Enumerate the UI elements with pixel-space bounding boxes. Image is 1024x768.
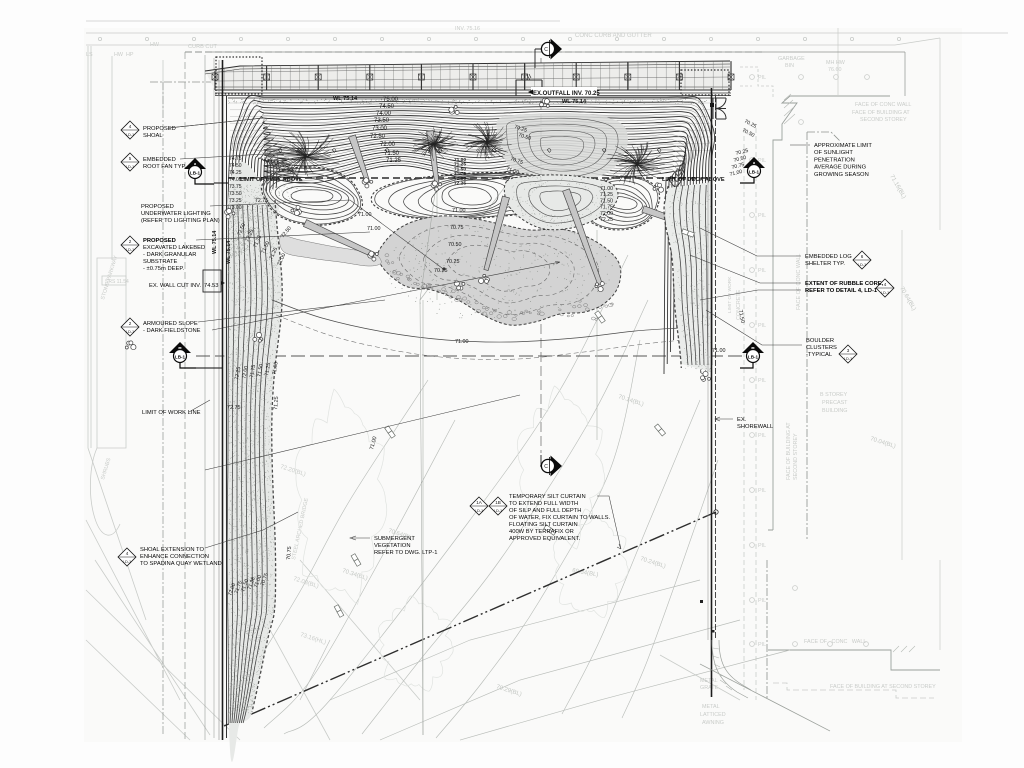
svg-text:LD-1: LD-1 xyxy=(126,164,134,169)
svg-text:SECOND STOREY: SECOND STOREY xyxy=(860,117,907,123)
svg-text:FACE OF CONC WALL: FACE OF CONC WALL xyxy=(796,254,802,310)
svg-text:73.50: 73.50 xyxy=(374,118,390,124)
svg-text:EX.OUTFALL INV. 70.25: EX.OUTFALL INV. 70.25 xyxy=(533,91,600,97)
svg-text:72.25: 72.25 xyxy=(600,217,613,223)
svg-text:71.50: 71.50 xyxy=(600,198,613,204)
svg-text:PRECAST: PRECAST xyxy=(822,400,848,406)
svg-text:3: 3 xyxy=(847,348,850,353)
svg-text:FACE OF CONC WALL: FACE OF CONC WALL xyxy=(804,639,866,645)
svg-text:74.00: 74.00 xyxy=(376,111,392,117)
svg-text:PIL: PIL xyxy=(758,642,766,648)
svg-text:ARMOURED SLOPE- DARK FIELDSTON: ARMOURED SLOPE- DARK FIELDSTONE xyxy=(143,321,201,334)
svg-text:71.25: 71.25 xyxy=(600,192,613,198)
svg-text:LD-1: LD-1 xyxy=(475,508,483,513)
svg-text:FACE OF BUILDING AT: FACE OF BUILDING AT xyxy=(852,110,910,116)
svg-text:74.50: 74.50 xyxy=(229,163,242,169)
svg-text:LD-1: LD-1 xyxy=(844,356,852,361)
svg-text:4: 4 xyxy=(129,124,132,129)
svg-text:EX. WALL CUT INV.: EX. WALL CUT INV. xyxy=(149,283,201,289)
svg-text:LD-1: LD-1 xyxy=(494,508,502,513)
svg-text:AWNING: AWNING xyxy=(702,720,724,726)
svg-text:EXTENT OF RUBBLE CORE,REFER TO: EXTENT OF RUBBLE CORE,REFER TO DETAIL 4,… xyxy=(805,281,884,294)
svg-text:B STOREY: B STOREY xyxy=(820,392,848,398)
svg-text:FACE OF BUILDING AT: FACE OF BUILDING AT xyxy=(786,422,792,480)
svg-text:72.50: 72.50 xyxy=(370,134,386,140)
svg-text:72.75: 72.75 xyxy=(255,198,268,204)
svg-text:WL 75.14: WL 75.14 xyxy=(333,96,358,102)
svg-text:71.00: 71.00 xyxy=(712,348,726,354)
svg-text:FACE OF CONC WALL: FACE OF CONC WALL xyxy=(855,102,911,108)
svg-text:PIL: PIL xyxy=(758,323,766,329)
svg-text:LB-1: LB-1 xyxy=(748,355,759,360)
svg-text:LD-1: LD-1 xyxy=(126,247,134,252)
svg-text:INV. 75.16: INV. 75.16 xyxy=(455,26,480,32)
svg-text:71.00: 71.00 xyxy=(452,208,466,214)
svg-text:74.75: 74.75 xyxy=(229,156,242,162)
svg-text:PIL: PIL xyxy=(758,488,766,494)
svg-text:MH HW: MH HW xyxy=(826,60,846,66)
svg-text:LS: LS xyxy=(86,52,93,58)
svg-text:73.00: 73.00 xyxy=(372,126,388,132)
svg-text:5: 5 xyxy=(129,156,132,161)
svg-text:71.00: 71.00 xyxy=(367,226,381,232)
svg-text:70.25: 70.25 xyxy=(446,259,460,265)
svg-text:70.50: 70.50 xyxy=(448,242,462,248)
svg-text:71.25: 71.25 xyxy=(273,396,280,410)
svg-text:WL 75.14: WL 75.14 xyxy=(562,99,587,105)
svg-text:2: 2 xyxy=(129,321,132,326)
svg-text:PIL: PIL xyxy=(758,268,766,274)
svg-text:72.25: 72.25 xyxy=(454,181,466,187)
svg-text:71.00: 71.00 xyxy=(358,212,372,218)
svg-text:71.00: 71.00 xyxy=(600,186,613,192)
svg-text:71.00: 71.00 xyxy=(455,339,469,345)
svg-text:4: 4 xyxy=(126,551,129,556)
svg-text:PIL: PIL xyxy=(758,378,766,384)
svg-text:PIL: PIL xyxy=(758,75,766,81)
svg-text:WL 75.14: WL 75.14 xyxy=(212,231,218,254)
svg-text:CONC CURB AND GUTTER: CONC CURB AND GUTTER xyxy=(575,33,652,39)
svg-text:LB-1: LB-1 xyxy=(175,355,186,360)
svg-text:LB-1: LB-1 xyxy=(190,171,201,176)
svg-text:BIN: BIN xyxy=(785,63,794,69)
svg-text:PIL: PIL xyxy=(758,433,766,439)
svg-text:LIMIT OF WORK LINE: LIMIT OF WORK LINE xyxy=(142,410,201,416)
svg-text:HW: HW xyxy=(150,42,160,48)
svg-text:72.00: 72.00 xyxy=(600,211,613,217)
svg-text:PIL: PIL xyxy=(758,598,766,604)
svg-text:PIL: PIL xyxy=(758,213,766,219)
svg-text:GARBAGE: GARBAGE xyxy=(778,56,805,62)
svg-text:WL 75.14: WL 75.14 xyxy=(226,241,232,264)
svg-text:LD-1: LD-1 xyxy=(881,290,889,295)
svg-text:HW HP: HW HP xyxy=(114,52,134,58)
svg-text:LD-1: LD-1 xyxy=(126,329,134,334)
svg-text:LD-1: LD-1 xyxy=(123,559,131,564)
svg-text:71.25: 71.25 xyxy=(386,158,402,164)
svg-text:GRATE: GRATE xyxy=(700,685,719,691)
svg-text:74.53: 74.53 xyxy=(204,283,219,289)
svg-text:LATTICED: LATTICED xyxy=(700,712,726,718)
svg-text:LD-1: LD-1 xyxy=(858,262,866,267)
svg-text:73.00: 73.00 xyxy=(229,205,242,211)
svg-text:4: 4 xyxy=(884,282,887,287)
svg-text:C: C xyxy=(544,464,548,470)
svg-text:71.75: 71.75 xyxy=(600,205,613,211)
svg-text:74.00: 74.00 xyxy=(229,177,242,183)
svg-text:75.00: 75.00 xyxy=(383,97,399,103)
svg-text:SRS 11.54: SRS 11.54 xyxy=(105,279,129,285)
svg-text:BUILDING: BUILDING xyxy=(822,408,847,414)
svg-text:70.75: 70.75 xyxy=(450,225,464,231)
svg-text:PROPOSED: PROPOSED xyxy=(143,238,176,244)
svg-text:1A: 1A xyxy=(476,500,483,505)
svg-text:C: C xyxy=(544,47,548,53)
svg-text:LD-1: LD-1 xyxy=(126,132,134,137)
svg-text:LB-1: LB-1 xyxy=(749,170,760,175)
svg-text:2: 2 xyxy=(129,239,132,244)
svg-text:74.25: 74.25 xyxy=(229,170,242,176)
svg-text:1B: 1B xyxy=(495,500,501,505)
svg-text:73.75: 73.75 xyxy=(229,184,242,190)
svg-text:72.75: 72.75 xyxy=(227,405,241,411)
svg-text:PIL: PIL xyxy=(758,543,766,549)
svg-text:SECOND STOREY: SECOND STOREY xyxy=(793,433,799,480)
svg-text:73.25: 73.25 xyxy=(229,198,242,204)
svg-text:72.00: 72.00 xyxy=(380,142,396,148)
svg-text:70.75: 70.75 xyxy=(286,546,293,560)
svg-text:FACE OF BUILDING AT SECOND STO: FACE OF BUILDING AT SECOND STOREY xyxy=(830,684,936,690)
svg-text:6: 6 xyxy=(861,254,864,259)
svg-text:CURB CUT: CURB CUT xyxy=(188,44,217,50)
svg-text:74.50: 74.50 xyxy=(379,104,395,110)
svg-text:76.60: 76.60 xyxy=(828,67,842,73)
svg-text:73.50: 73.50 xyxy=(229,191,242,197)
svg-text:METAL: METAL xyxy=(702,704,720,710)
